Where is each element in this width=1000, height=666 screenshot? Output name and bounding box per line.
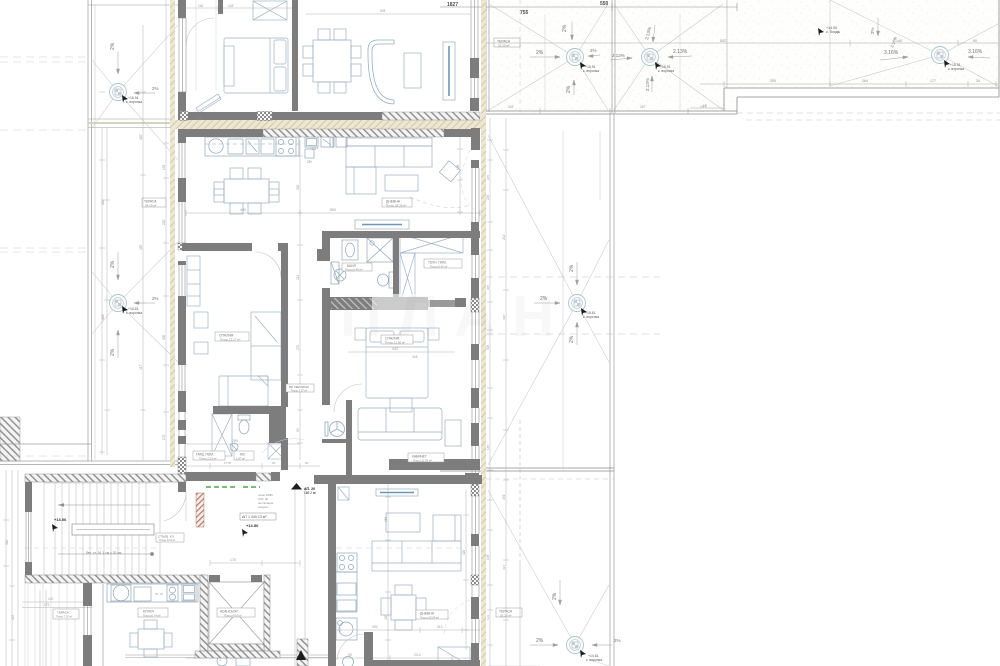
svg-text:220': 220' [162,219,166,225]
svg-text:2%: 2% [110,348,116,356]
svg-text:25.20 м²: 25.20 м² [500,614,511,618]
svg-text:550: 550 [600,1,609,7]
svg-text:Площ 3.12 м²: Площ 3.12 м² [199,457,216,461]
svg-text:3.16%: 3.16% [884,50,899,56]
svg-text:432': 432' [101,198,105,205]
svg-text:к. воронка: к. воронка [586,658,602,662]
svg-text:462': 462' [101,313,105,320]
svg-text:430: 430 [372,625,378,629]
svg-text:270: 270 [296,344,300,350]
svg-text:2%: 2% [614,638,621,643]
svg-text:431': 431' [502,494,506,500]
svg-text:2%: 2% [870,27,875,34]
svg-text:178: 178 [230,558,236,562]
svg-text:ТЕРАСА: ТЕРАСА [57,611,69,615]
svg-text:2.13%: 2.13% [673,49,688,55]
svg-text:133: 133 [486,615,490,620]
svg-text:1827: 1827 [447,2,458,8]
svg-text:+14.50: +14.50 [246,523,259,528]
svg-text:310': 310' [5,539,9,545]
svg-text:2%: 2% [110,42,116,50]
svg-text:417': 417' [139,364,143,370]
svg-text:300: 300 [162,334,166,340]
svg-text:34: 34 [976,79,980,83]
svg-text:431': 431' [502,564,506,570]
svg-text:Площ 15.17 м²: Площ 15.17 м² [220,338,240,342]
svg-text:420': 420' [139,134,143,140]
svg-text:133: 133 [162,164,166,170]
svg-text:90: 90 [296,428,300,432]
svg-text:455': 455' [139,244,143,250]
svg-text:Площ 29.04 м²: Площ 29.04 м² [420,616,439,620]
svg-text:+2.5+: +2.5+ [310,147,318,151]
svg-text:211': 211' [502,234,506,240]
svg-text:2%: 2% [569,264,575,272]
svg-text:3х8: 3х8 [412,355,418,359]
svg-text:к. воронка: к. воронка [583,315,599,319]
svg-text:1778: 1778 [224,461,231,465]
svg-text:ПЛАН: ПЛАН [340,284,570,349]
svg-text:Площ 13.9 м²: Площ 13.9 м² [159,538,175,542]
svg-text:211: 211 [296,275,300,280]
svg-text:23.4: 23.4 [414,653,421,657]
svg-text:755: 755 [520,10,529,16]
svg-text:генерал: генерал [258,505,269,509]
svg-text:188: 188 [486,445,490,450]
svg-text:31.20 м²: 31.20 м² [498,44,509,48]
svg-text:Площ 3.67 м²: Площ 3.67 м² [291,389,307,393]
svg-text:502': 502' [720,39,727,43]
svg-text:34.29 м²: 34.29 м² [145,204,156,208]
svg-text:Площ 6.42 м²: Площ 6.42 м² [430,265,447,269]
svg-text:264: 264 [862,79,868,83]
svg-text:177: 177 [930,79,936,83]
svg-text:299: 299 [232,439,238,443]
svg-text:к. боядж: к. боядж [826,30,841,34]
svg-text:225: 225 [486,175,490,180]
svg-text:2%: 2% [552,592,558,600]
svg-text:к. воронка: к. воронка [583,69,599,73]
svg-text:+13.06: +13.06 [54,517,67,522]
svg-text:90: 90 [973,39,977,43]
svg-text:бет. ст. 16.1 см х 30 см: бет. ст. 16.1 см х 30 см [86,551,122,555]
svg-text:к. воронка: к. воронка [126,100,142,104]
svg-text:60: 60 [305,461,309,465]
svg-text:к. воронка: к. воронка [658,69,674,73]
svg-text:Площ 6.46 м²: Площ 6.46 м² [345,268,362,272]
svg-text:СТЪЛБ. КЛ.: СТЪЛБ. КЛ. [158,535,175,539]
svg-text:2%: 2% [536,50,544,56]
svg-text:90: 90 [272,461,276,465]
svg-text:175: 175 [162,434,166,440]
svg-text:18: 18 [703,104,707,108]
svg-text:1.87 м²: 1.87 м² [236,457,245,461]
svg-text:Площ 7.02 м²: Площ 7.02 м² [56,615,72,619]
svg-text:133: 133 [486,554,490,560]
svg-text:2.13%: 2.13% [645,78,650,91]
svg-text:103': 103' [228,4,234,8]
svg-text:307: 307 [11,614,15,620]
svg-text:ПР. ПЕРАЛНЯ: ПР. ПЕРАЛНЯ [289,385,309,389]
svg-text:к. воронка: к. воронка [948,67,964,71]
svg-text:Площ 4.06 м²: Площ 4.06 м² [224,614,241,618]
svg-text:2%: 2% [590,48,597,53]
svg-text:2%: 2% [562,24,568,32]
svg-text:3.16%: 3.16% [968,49,983,55]
svg-text:169.2 м²: 169.2 м² [304,491,316,495]
svg-text:300: 300 [770,79,776,83]
svg-text:Площ 11.93 м²: Площ 11.93 м² [413,459,432,463]
svg-text:Площ 6.74 м²: Площ 6.74 м² [143,614,160,618]
svg-text:Площ 11.56 м²: Площ 11.56 м² [385,341,405,345]
svg-text:2%: 2% [152,86,159,91]
svg-text:528: 528 [380,9,386,13]
svg-text:25+: 25+ [307,160,313,164]
svg-text:287': 287' [640,105,646,109]
svg-text:420: 420 [462,549,466,555]
svg-text:2%: 2% [152,296,159,301]
svg-text:312: 312 [437,625,443,629]
svg-text:2%: 2% [110,260,116,268]
svg-text:АП 1 440.13 м²: АП 1 440.13 м² [242,515,267,519]
svg-text:2%: 2% [566,85,572,93]
svg-text:860: 860 [330,208,336,212]
svg-text:-2.20: -2.20 [195,117,202,121]
svg-text:2.13%: 2.13% [612,53,625,58]
svg-text:173: 173 [44,603,50,607]
svg-text:Площ 28.36 м²: Площ 28.36 м² [386,204,406,208]
svg-text:340: 340 [296,184,300,190]
svg-text:140': 140' [896,39,903,43]
svg-text:к. воронка: к. воронка [126,311,142,315]
svg-text:225: 225 [486,194,490,200]
svg-text:2%: 2% [536,638,544,644]
svg-text:118: 118 [198,4,203,8]
svg-text:254': 254' [508,105,514,109]
